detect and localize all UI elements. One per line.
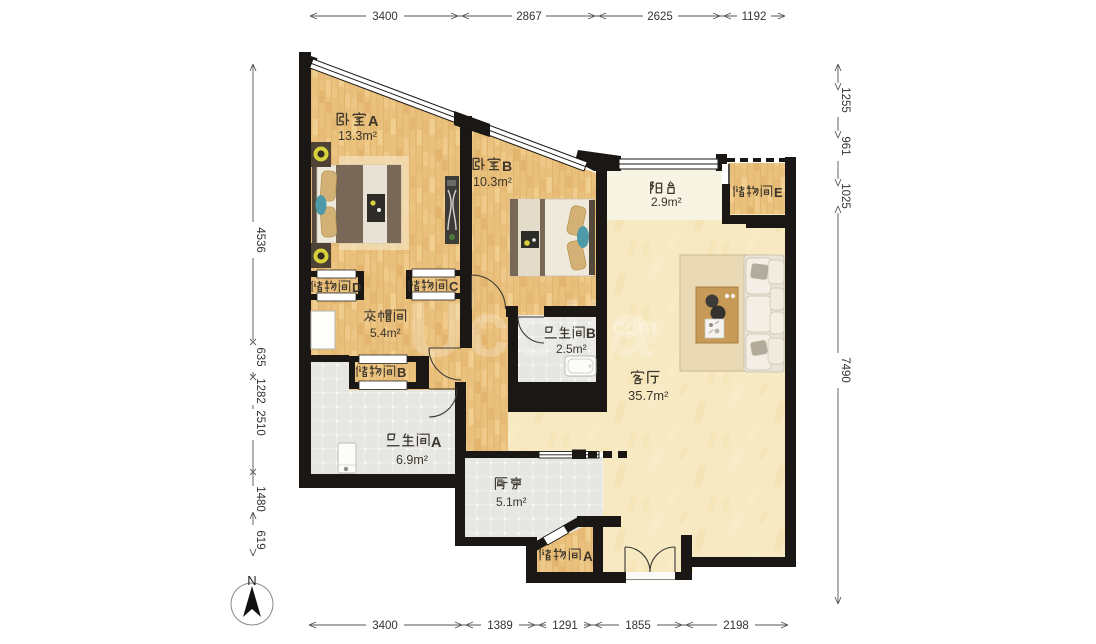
svg-text:1291: 1291 [552, 620, 578, 632]
svg-text:1282: 1282 [254, 378, 266, 404]
svg-text:C: C [449, 279, 459, 294]
svg-text:35.7m²: 35.7m² [628, 388, 669, 403]
svg-text:619: 619 [254, 530, 266, 549]
svg-text:3400: 3400 [372, 620, 398, 632]
svg-text:A: A [583, 549, 593, 564]
svg-text:6.9m²: 6.9m² [396, 453, 428, 467]
svg-text:B: B [502, 158, 512, 174]
svg-text:1255: 1255 [839, 87, 851, 113]
svg-text:com: com [612, 314, 657, 339]
svg-text:5.1m²: 5.1m² [496, 495, 527, 509]
svg-text:3400: 3400 [372, 11, 398, 23]
svg-text:B: B [397, 365, 406, 380]
svg-text:2.9m²: 2.9m² [651, 195, 682, 209]
svg-text:1192: 1192 [742, 11, 767, 23]
svg-text:2510: 2510 [254, 410, 266, 436]
svg-text:1389: 1389 [487, 620, 513, 632]
svg-text:o: o [282, 558, 308, 605]
svg-text:2.5m²: 2.5m² [556, 342, 587, 356]
svg-text:2625: 2625 [647, 11, 673, 23]
svg-text:7490: 7490 [839, 357, 851, 383]
svg-text:A: A [368, 114, 379, 130]
svg-text:B: B [586, 326, 596, 341]
svg-text:13.3m²: 13.3m² [338, 129, 377, 143]
svg-text:N: N [247, 573, 256, 588]
svg-text:961: 961 [839, 136, 851, 155]
svg-text:10.3m²: 10.3m² [473, 175, 512, 189]
svg-text:E: E [774, 185, 783, 200]
svg-text:D: D [352, 280, 361, 295]
svg-text:5.4m²: 5.4m² [370, 326, 401, 340]
svg-text:2198: 2198 [723, 620, 749, 632]
svg-text:1480: 1480 [254, 486, 266, 512]
svg-text:1855: 1855 [625, 620, 651, 632]
svg-text:A: A [431, 435, 442, 451]
svg-text:635: 635 [254, 347, 266, 366]
svg-text:1025: 1025 [839, 183, 851, 209]
svg-text:4536: 4536 [254, 227, 266, 253]
svg-text:2867: 2867 [516, 11, 542, 23]
